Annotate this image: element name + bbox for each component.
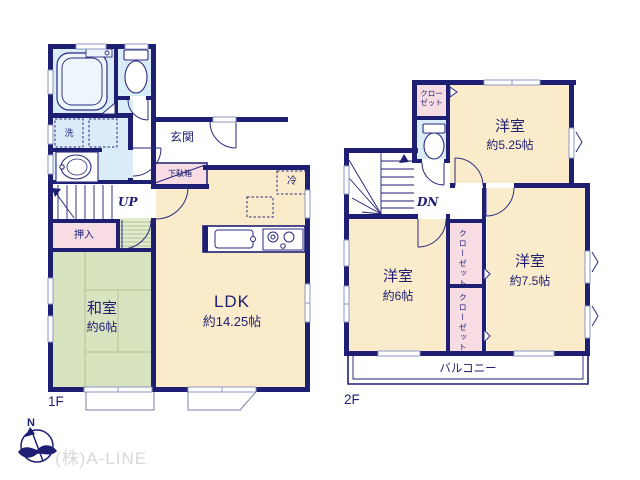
fridge-label: 冷 bbox=[282, 176, 302, 188]
floorplan-page: 玄関 下駄箱 洗 UP 押入 和室 約6帖 LDK 約14.25帖 冷 1F ク… bbox=[0, 0, 640, 480]
room-label-washitsu: 和室 bbox=[62, 300, 142, 317]
stairs-up bbox=[52, 185, 112, 219]
room-label-6: 洋室 bbox=[350, 268, 446, 285]
room-label-525: 洋室 bbox=[460, 118, 560, 135]
understair-storage bbox=[120, 218, 151, 248]
room-label-getabako: 下駄箱 bbox=[153, 169, 207, 178]
stairs-up-label: UP bbox=[118, 196, 138, 210]
room-size-6: 約6帖 bbox=[350, 290, 446, 304]
closet-a-label: クローゼット bbox=[458, 229, 467, 289]
sink-icon bbox=[215, 230, 253, 248]
room-size-525: 約5.25帖 bbox=[460, 139, 560, 153]
vanity-icon bbox=[56, 152, 98, 182]
room-label-laundry: 洗 bbox=[57, 128, 81, 138]
toilet-2f-icon bbox=[423, 124, 445, 159]
room-size-ldk: 約14.25帖 bbox=[182, 315, 282, 330]
toilet-1f-icon bbox=[124, 50, 148, 93]
room-label-genkan: 玄関 bbox=[160, 131, 204, 145]
room-size-washitsu: 約6帖 bbox=[62, 321, 142, 335]
room-label-oshiire: 押入 bbox=[50, 230, 118, 242]
room-label-ldk: LDK bbox=[182, 292, 282, 312]
closet-b-label: クローゼット bbox=[458, 293, 467, 353]
closet-upper-label: クローゼット bbox=[417, 90, 446, 107]
company-watermark: (株)A-LINE bbox=[55, 449, 147, 469]
kitchen-counter-icon bbox=[203, 226, 305, 252]
room-label-75: 洋室 bbox=[480, 253, 580, 270]
floor1-label: 1F bbox=[48, 394, 64, 410]
compass-icon bbox=[18, 427, 57, 462]
stairs-down bbox=[349, 153, 414, 214]
balcony-label: バルコニー bbox=[400, 363, 536, 376]
compass-north-label: N bbox=[25, 417, 37, 430]
floor1-plan bbox=[48, 44, 310, 410]
bathtub-icon bbox=[57, 49, 112, 110]
ldk-floor bbox=[156, 170, 305, 387]
room-size-75: 約7.5帖 bbox=[480, 275, 580, 289]
terrace-outline bbox=[86, 392, 256, 410]
floor2-label: 2F bbox=[344, 392, 360, 408]
stairs-down-label: DN bbox=[417, 196, 438, 210]
